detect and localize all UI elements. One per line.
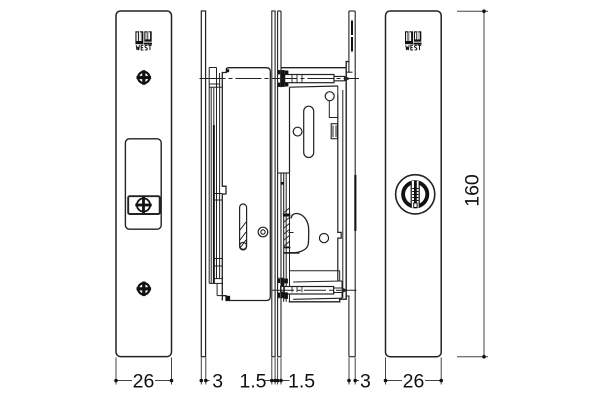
svg-text:1.5: 1.5 — [239, 370, 266, 392]
svg-text:3: 3 — [360, 370, 371, 392]
svg-text:26: 26 — [403, 370, 425, 392]
svg-text:26: 26 — [133, 370, 155, 392]
svg-text:1.5: 1.5 — [288, 370, 315, 392]
svg-text:3: 3 — [212, 370, 223, 392]
svg-text:160: 160 — [462, 174, 484, 207]
